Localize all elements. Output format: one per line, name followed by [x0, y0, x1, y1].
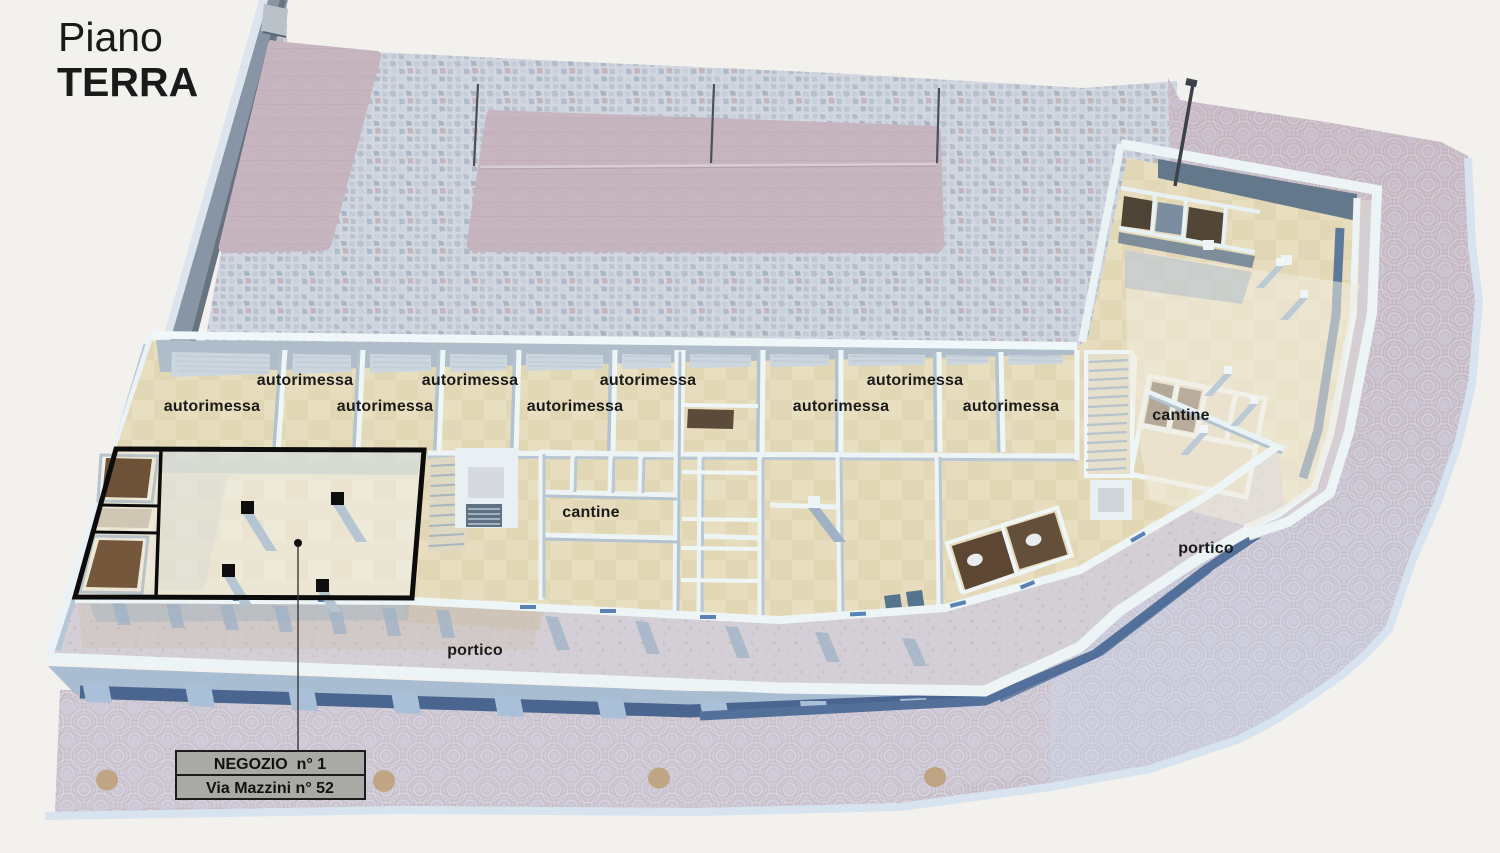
svg-text:Piano: Piano: [58, 14, 163, 60]
svg-text:portico: portico: [447, 642, 503, 659]
svg-text:autorimessa: autorimessa: [600, 372, 696, 389]
svg-text:Via Mazzini n° 52: Via Mazzini n° 52: [206, 780, 334, 797]
svg-text:cantine: cantine: [1152, 407, 1209, 424]
svg-text:autorimessa: autorimessa: [257, 372, 353, 389]
svg-text:autorimessa: autorimessa: [337, 398, 433, 415]
svg-text:portico: portico: [1178, 540, 1234, 557]
svg-text:autorimessa: autorimessa: [963, 398, 1059, 415]
svg-text:autorimessa: autorimessa: [527, 398, 623, 415]
svg-text:NEGOZIO n° 1: NEGOZIO n° 1: [214, 756, 326, 773]
svg-text:cantine: cantine: [562, 504, 619, 521]
svg-text:autorimessa: autorimessa: [164, 398, 260, 415]
svg-text:autorimessa: autorimessa: [793, 398, 889, 415]
svg-text:TERRA: TERRA: [57, 59, 198, 105]
svg-text:autorimessa: autorimessa: [867, 372, 963, 389]
svg-text:autorimessa: autorimessa: [422, 372, 518, 389]
